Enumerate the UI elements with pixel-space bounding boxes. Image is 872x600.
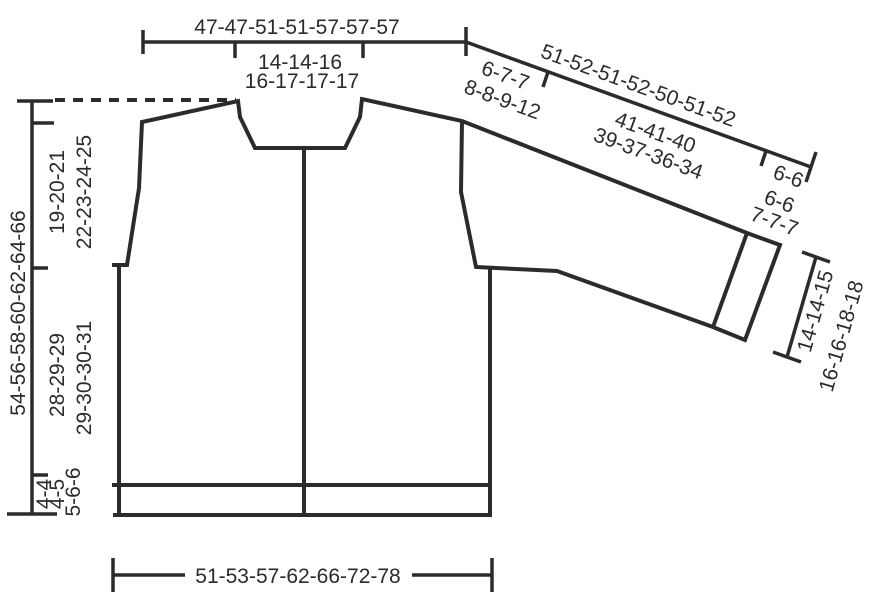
- pattern-schematic-page: 47-47-51-51-57-57-57 14-14-16 16-17-17-1…: [0, 0, 872, 600]
- body-lower-outline: [113, 265, 490, 515]
- neck-width-label-line2: 16-17-17-17: [245, 70, 359, 93]
- top-shoulder-width-label: 47-47-51-51-57-57-57: [194, 16, 399, 39]
- total-length-label: 54-56-58-60-62-64-66: [7, 210, 30, 415]
- armhole-depth-label-line1: 19-20-21: [46, 150, 69, 234]
- cuff-inner-line: [713, 233, 747, 327]
- hem-band-label-line3: 5-6-6: [62, 467, 85, 516]
- armhole-depth-label-line2: 22-23-24-25: [73, 135, 96, 249]
- body-length-label-line1: 28-29-29: [46, 333, 69, 417]
- schematic-canvas: 47-47-51-51-57-57-57 14-14-16 16-17-17-1…: [0, 0, 872, 600]
- body-length-label-line2: 29-30-30-31: [73, 321, 96, 435]
- bottom-width-label: 51-53-57-62-66-72-78: [195, 565, 400, 588]
